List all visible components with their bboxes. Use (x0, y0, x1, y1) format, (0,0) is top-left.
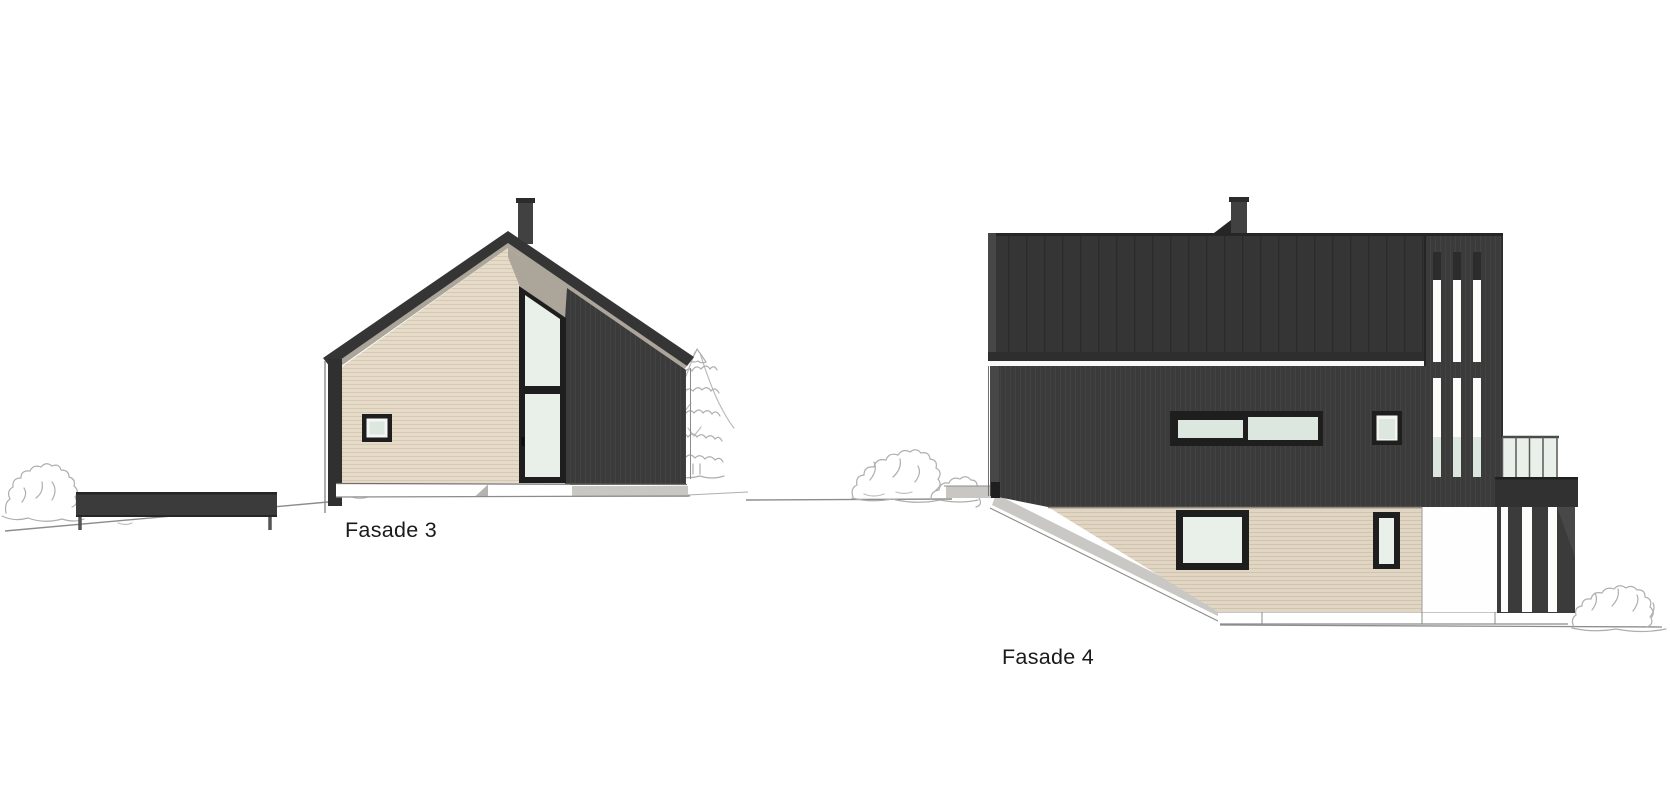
chimney-base-shadow (1214, 220, 1231, 233)
carport-deck (76, 492, 277, 530)
slat-gaps-upper (1433, 280, 1481, 362)
ground-line (746, 499, 952, 500)
glass-pane (370, 422, 385, 435)
deck-fascia (76, 492, 277, 517)
facade-3-drawing (2, 198, 748, 531)
facade-4-label: Fasade 4 (1002, 645, 1094, 670)
tall-window-door (519, 286, 566, 483)
facade-3-label: Fasade 3 (345, 518, 437, 543)
ground-line (1220, 625, 1662, 627)
slat-gaps-glass (1433, 437, 1481, 477)
chimney (1214, 197, 1249, 234)
balcony-fascia (1495, 477, 1578, 507)
glass-pane (1248, 417, 1318, 440)
roof-fascia (988, 352, 1425, 361)
lower-window (1176, 510, 1249, 570)
lower-glass-pane (525, 394, 560, 477)
house-fasade-3 (323, 198, 694, 513)
glass-pane (1379, 419, 1395, 439)
bush-sketch (2, 464, 84, 522)
under-balcony-slats (1497, 507, 1575, 613)
glass-pane (1379, 518, 1394, 564)
glass-pane (1178, 420, 1243, 438)
white-lower-wall (1422, 507, 1497, 612)
narrow-window (1373, 512, 1400, 569)
bush-sketch (852, 450, 981, 507)
balcony-glass-railing (1502, 437, 1559, 478)
chimney (516, 198, 535, 244)
small-square-window (1372, 411, 1402, 445)
horizontal-window-band (1170, 411, 1323, 446)
door-handle (522, 437, 525, 446)
small-square-window (362, 414, 392, 442)
glass-pane (1183, 517, 1242, 563)
mono-roof (988, 233, 1425, 366)
elevation-drawings-canvas (0, 0, 1670, 800)
beige-gable-wall (336, 248, 520, 483)
foundation-strip (336, 484, 690, 498)
facade-4-drawing (746, 197, 1666, 632)
slat-screen-tower (1425, 233, 1503, 507)
slat-gaps-mid (1433, 378, 1481, 437)
deck-posts (80, 517, 270, 530)
grass-marks (864, 492, 912, 496)
wall-edge-board (990, 366, 999, 496)
ground-line (688, 492, 748, 495)
bush-sketch (1572, 586, 1666, 632)
roof-edge-board (988, 233, 996, 357)
corner-post (991, 482, 1000, 498)
